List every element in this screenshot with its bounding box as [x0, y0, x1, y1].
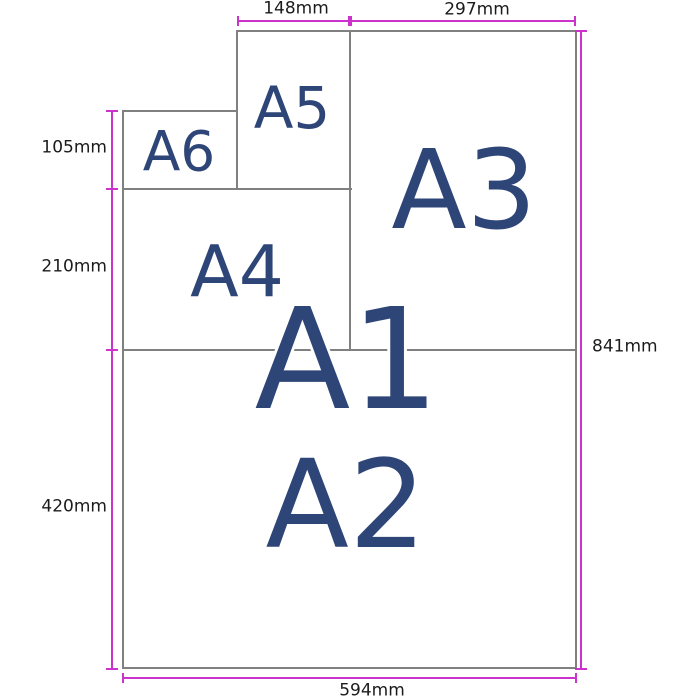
a5-left-border — [236, 30, 238, 190]
dimension-label-105mm: 105mm — [41, 140, 107, 157]
sheet-border-left — [122, 110, 124, 669]
paper-label-a3: A3 — [391, 135, 536, 245]
dimension-label-148mm: 148mm — [263, 1, 329, 18]
dimension-label-210mm: 210mm — [41, 259, 107, 276]
dimension-label-420mm: 420mm — [41, 499, 107, 516]
dimension-line-left — [111, 110, 113, 670]
paper-size-diagram: 148mm 297mm 105mm 210mm 420mm 841mm 594m… — [0, 0, 700, 700]
paper-label-a6: A6 — [143, 125, 216, 180]
dimension-line-841mm — [580, 30, 582, 670]
a6-a5-bottom-border — [122, 188, 352, 190]
a6-top-border — [122, 110, 238, 112]
dimension-label-841mm: 841mm — [592, 339, 658, 356]
paper-label-a5: A5 — [254, 79, 331, 137]
dimension-tick-105-210-icon — [106, 188, 118, 190]
sheet-border-top — [236, 30, 577, 32]
dimension-tick-210-420-icon — [106, 349, 118, 351]
dimension-line-148mm — [237, 20, 350, 22]
paper-label-a4: A4 — [190, 237, 284, 308]
dimension-label-594mm: 594mm — [339, 683, 405, 700]
sheet-border-bottom — [122, 667, 577, 669]
dimension-label-297mm: 297mm — [444, 2, 510, 19]
paper-label-a2: A2 — [265, 444, 426, 566]
dimension-line-594mm — [122, 677, 577, 679]
dimension-line-297mm — [350, 20, 576, 22]
